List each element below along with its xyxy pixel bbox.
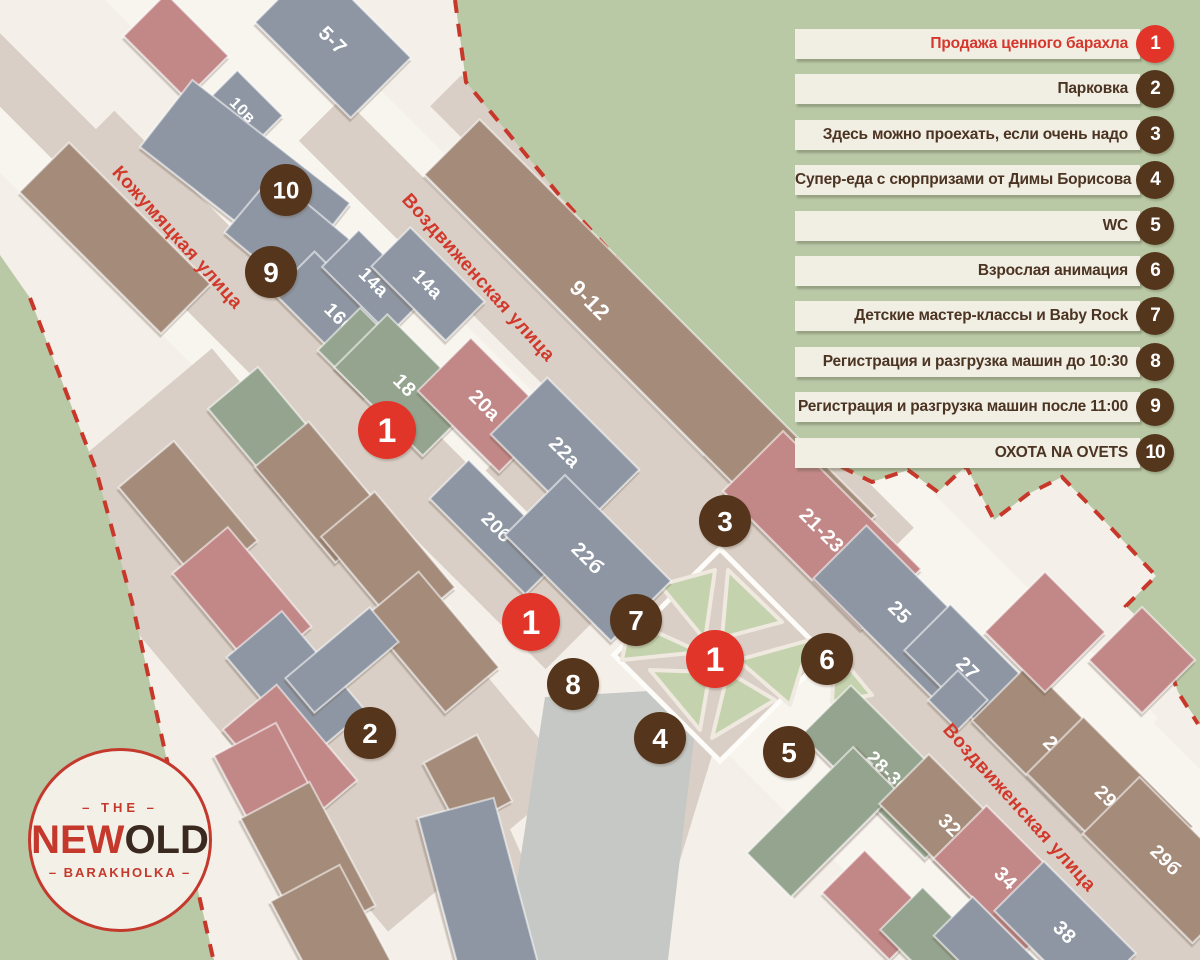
svg-text:9: 9 [263, 257, 279, 288]
map-marker-8: 8 [547, 658, 599, 710]
map-marker-7: 7 [610, 594, 662, 646]
svg-text:2: 2 [362, 718, 378, 749]
map-marker-4: 4 [634, 712, 686, 764]
svg-text:1: 1 [706, 641, 725, 679]
svg-text:4: 4 [652, 723, 668, 754]
logo-name-old: OLD [124, 818, 208, 862]
svg-text:6: 6 [819, 644, 835, 675]
svg-text:1: 1 [522, 604, 541, 642]
svg-text:10: 10 [273, 177, 300, 204]
svg-text:1: 1 [378, 412, 397, 450]
event-map-poster: 5-710в16б14а14а1820а22а20б22б9-1221-2325… [0, 0, 1200, 960]
map-marker-1: 1 [686, 630, 744, 688]
svg-text:5: 5 [781, 737, 797, 768]
map-marker-1: 1 [358, 401, 416, 459]
svg-text:7: 7 [628, 605, 644, 636]
logo-badge: – THE – NEWOLD – BARAKHOLKA – [28, 748, 212, 932]
map-marker-2: 2 [344, 707, 396, 759]
svg-text:8: 8 [565, 669, 581, 700]
map-marker-10: 10 [260, 164, 312, 216]
map-marker-5: 5 [763, 726, 815, 778]
logo-subtitle: – BARAKHOLKA – [49, 865, 191, 880]
map-marker-9: 9 [245, 246, 297, 298]
logo-name-new: NEW [31, 818, 124, 862]
map-marker-6: 6 [801, 633, 853, 685]
svg-text:3: 3 [717, 506, 733, 537]
map-marker-3: 3 [699, 495, 751, 547]
map-marker-1: 1 [502, 593, 560, 651]
logo-the-line: – THE – [82, 800, 158, 815]
logo-name: NEWOLD [31, 818, 209, 863]
